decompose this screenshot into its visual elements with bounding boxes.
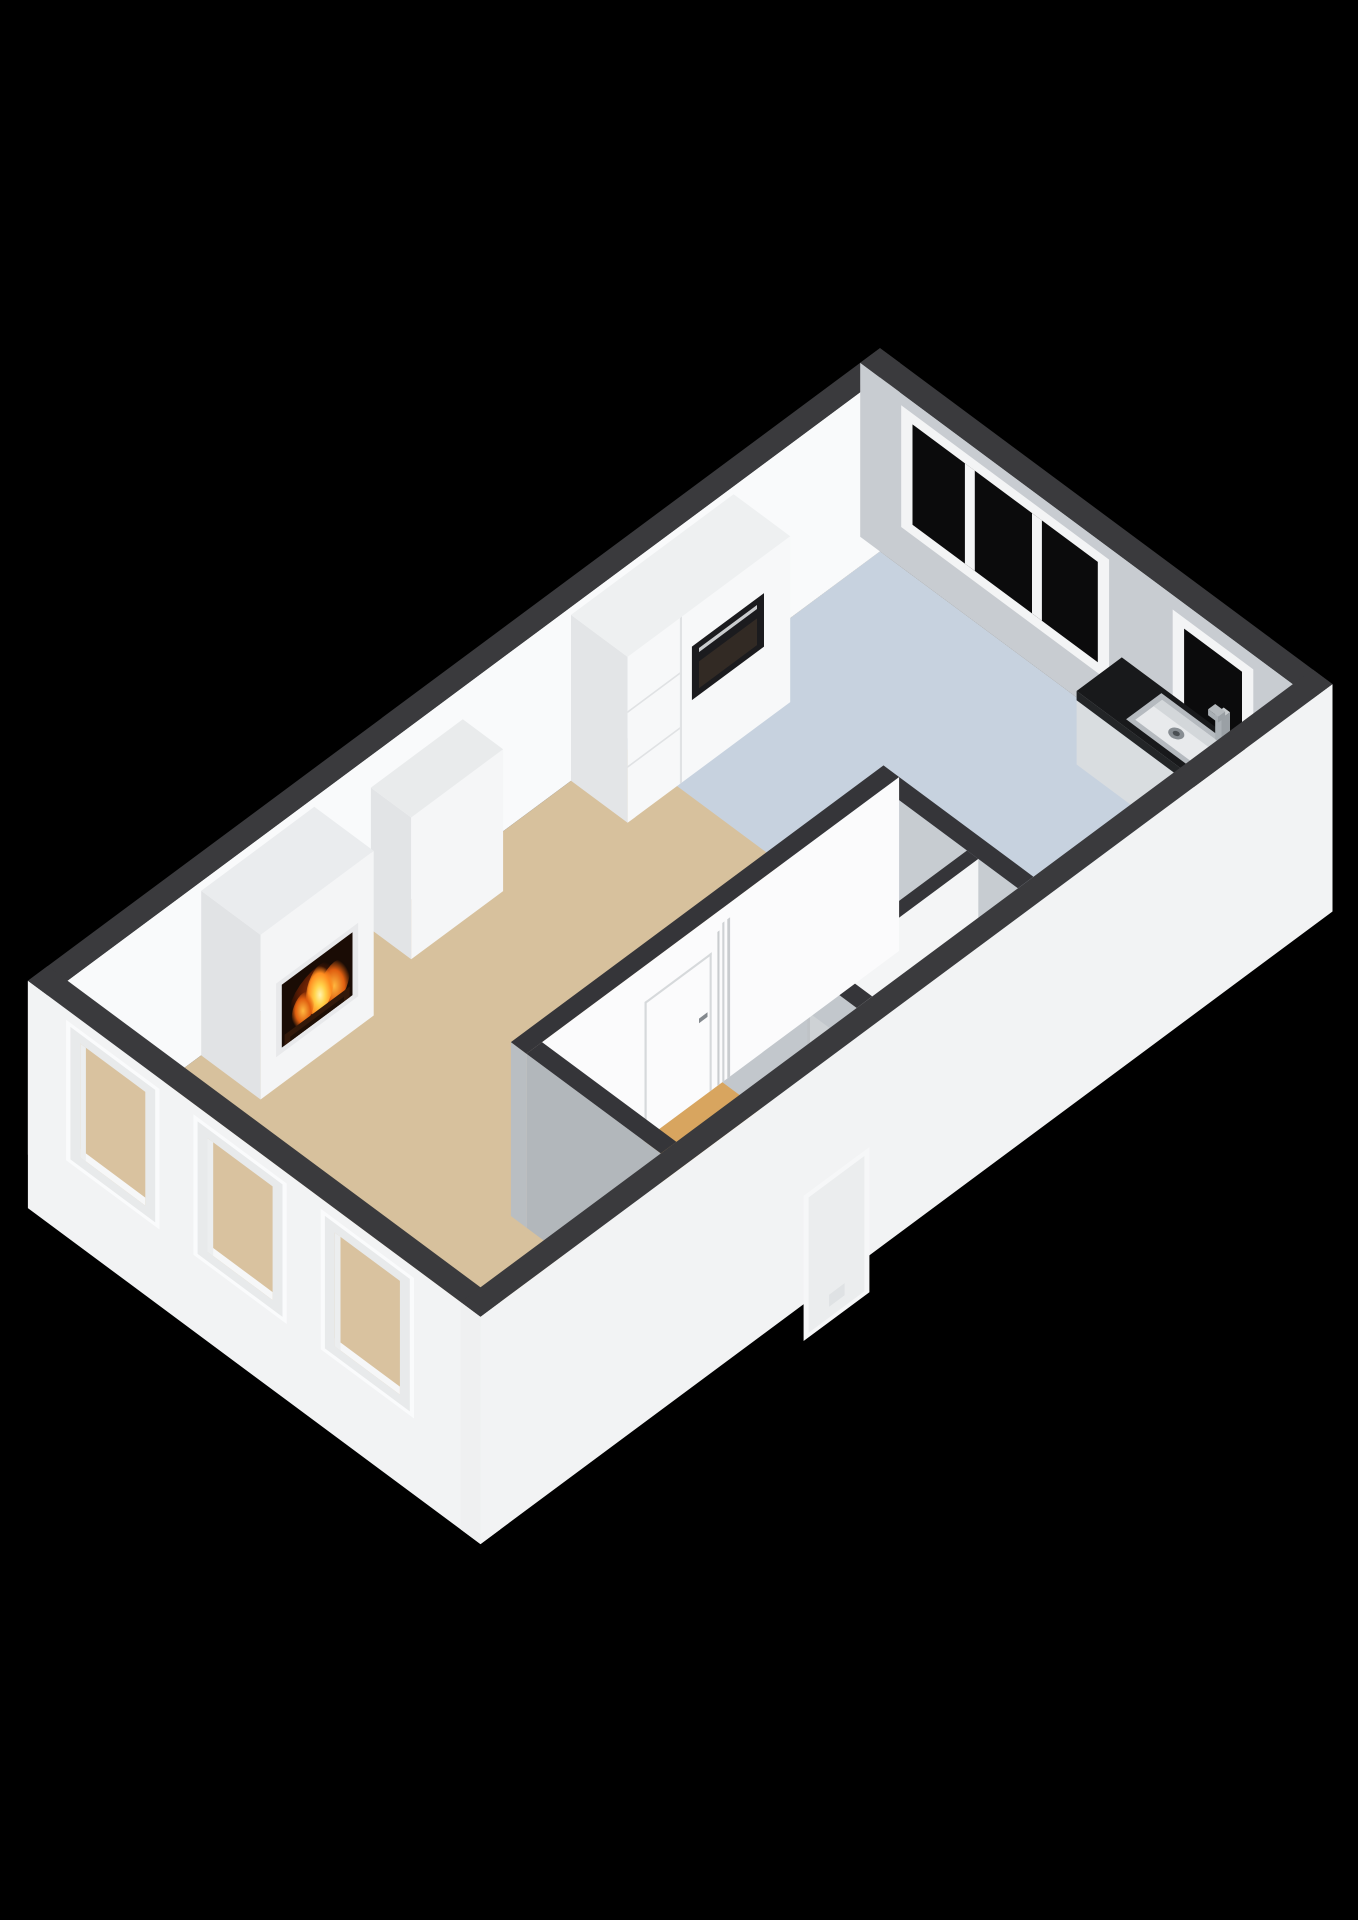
wall-pier-side [371, 788, 411, 960]
bl-window-1-reveal [80, 1044, 86, 1162]
interior-west-wall-side [511, 1042, 527, 1228]
bl-window-2-reveal [208, 1138, 214, 1256]
large-window-mullion-1 [965, 463, 975, 571]
floorplan-stage [0, 0, 1358, 1920]
hall-pipes-2 [722, 921, 724, 1082]
bl-window-3-reveal [335, 1233, 341, 1351]
floorplan-3d-canvas[interactable] [0, 0, 1358, 1920]
large-window-mullion-2 [1032, 513, 1042, 621]
wall-bottom-right-side [461, 1302, 481, 1544]
hall-pipes-3 [717, 930, 719, 1085]
hall-pipes-1 [727, 917, 730, 1078]
hall-door-bathroom-seam-1 [710, 952, 712, 1091]
cabinet-seam-vertical [680, 617, 682, 785]
